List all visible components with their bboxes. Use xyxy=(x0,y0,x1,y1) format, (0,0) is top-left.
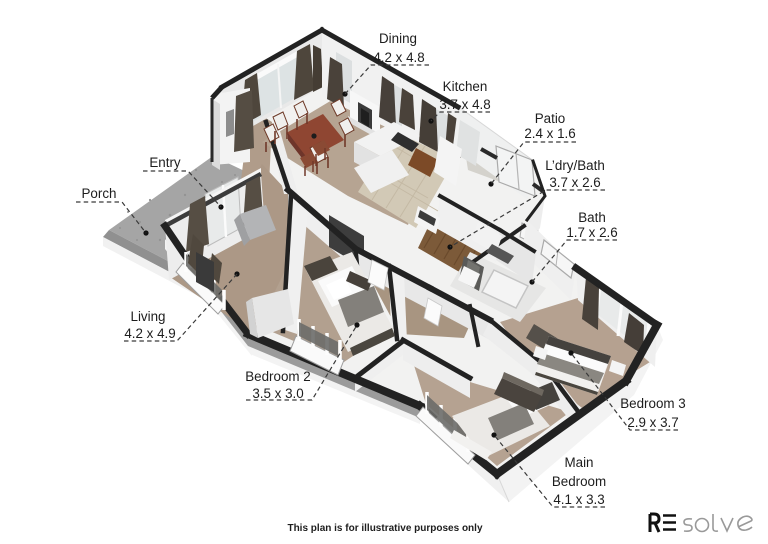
svg-text:Living: Living xyxy=(131,309,166,324)
svg-text:3.5 x 3.0: 3.5 x 3.0 xyxy=(252,386,303,401)
svg-text:1.7 x 2.6: 1.7 x 2.6 xyxy=(566,225,617,240)
svg-text:Bath: Bath xyxy=(578,210,606,225)
svg-text:Bedroom 3: Bedroom 3 xyxy=(620,396,686,411)
svg-text:Porch: Porch xyxy=(82,186,117,201)
svg-text:4.2 x 4.8: 4.2 x 4.8 xyxy=(373,50,424,65)
svg-text:Patio: Patio xyxy=(535,111,566,126)
svg-text:3.7 x 4.8: 3.7 x 4.8 xyxy=(439,97,490,112)
svg-text:Dining: Dining xyxy=(379,31,417,46)
svg-text:Main: Main xyxy=(564,455,593,470)
svg-text:This plan is for illustrative: This plan is for illustrative purposes o… xyxy=(287,523,482,534)
svg-text:Entry: Entry xyxy=(149,155,181,170)
svg-text:Bedroom: Bedroom xyxy=(552,474,606,489)
svg-text:4.2 x 4.9: 4.2 x 4.9 xyxy=(124,326,175,341)
svg-text:Kitchen: Kitchen xyxy=(443,79,488,94)
svg-text:Bedroom 2: Bedroom 2 xyxy=(245,369,311,384)
svg-text:2.9 x 3.7: 2.9 x 3.7 xyxy=(627,415,678,430)
svg-text:4.1 x 3.3: 4.1 x 3.3 xyxy=(553,492,604,507)
svg-text:L’dry/Bath: L’dry/Bath xyxy=(545,158,605,173)
svg-text:2.4 x 1.6: 2.4 x 1.6 xyxy=(524,126,575,141)
svg-text:3.7 x 2.6: 3.7 x 2.6 xyxy=(549,175,600,190)
